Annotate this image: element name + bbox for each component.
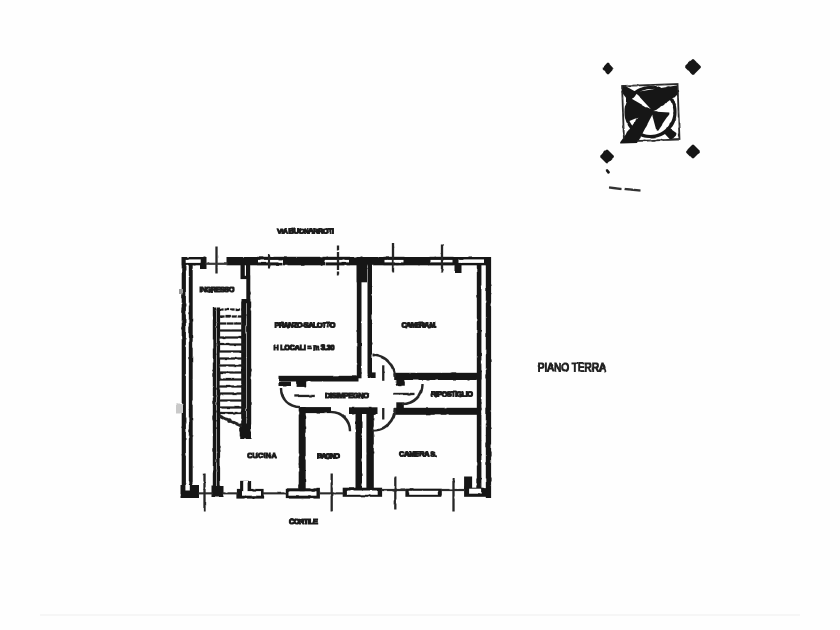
svg-text:BAGNO: BAGNO [317, 452, 340, 461]
svg-text:H LOCALI = m 3.30: H LOCALI = m 3.30 [274, 343, 335, 352]
svg-text:CAMERA S.: CAMERA S. [399, 450, 437, 459]
svg-text:VIA BUONARROTI: VIA BUONARROTI [277, 227, 334, 236]
svg-text:PRANZO-SALOTTO: PRANZO-SALOTTO [275, 321, 336, 330]
svg-text:PIANO TERRA: PIANO TERRA [538, 363, 606, 375]
svg-text:INGRESSO: INGRESSO [200, 285, 235, 294]
svg-text:DISIMPEGNO: DISIMPEGNO [325, 391, 369, 400]
svg-text:RIPOSTIGLIO: RIPOSTIGLIO [431, 390, 473, 399]
svg-text:CUCINA: CUCINA [247, 451, 277, 460]
svg-text:CORTILE: CORTILE [289, 517, 318, 526]
svg-text:CAMERA M.: CAMERA M. [402, 321, 437, 330]
